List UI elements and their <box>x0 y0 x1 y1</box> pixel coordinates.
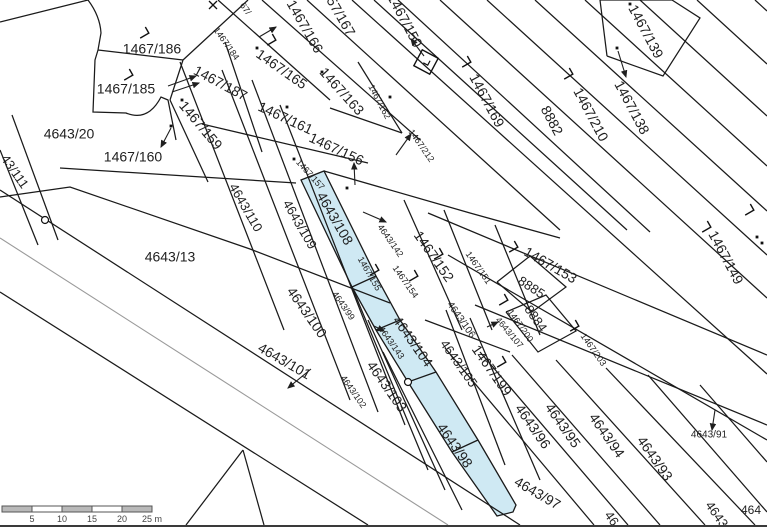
leader-arrow <box>161 128 171 147</box>
parcel-boundary <box>186 450 243 525</box>
survey-point-circle <box>405 379 412 386</box>
parcel-label: 4643/99 <box>330 289 357 321</box>
parcel-label: 4643/94 <box>586 410 628 461</box>
parcel-boundary <box>448 255 767 440</box>
parcel-label: 1467/162 <box>366 83 392 121</box>
parcel-label: 4643/102 <box>339 373 369 409</box>
corner-mark <box>699 221 711 232</box>
scale-bar-segment <box>92 506 122 512</box>
parcel-label: 1467/151 <box>464 249 494 285</box>
parcel-boundary <box>0 0 88 22</box>
leader-arrow <box>712 410 715 430</box>
parcel-boundary <box>755 0 767 11</box>
parcel-label: 4643/91 <box>691 430 728 441</box>
corner-mark <box>742 204 754 215</box>
survey-point-dot <box>256 47 259 50</box>
leader-arrow <box>363 212 386 222</box>
survey-point-dot <box>293 158 296 161</box>
corner-mark <box>121 69 133 80</box>
parcel-label: 4643/142 <box>376 222 406 258</box>
parcel-label: 4643/93 <box>634 433 676 484</box>
leader-arrow <box>396 134 411 155</box>
parcel-label: 1467/159 <box>176 98 226 153</box>
corner-mark <box>496 294 508 305</box>
parcel-label: 1467/156 <box>307 129 367 168</box>
leader-arrow <box>172 83 199 92</box>
parcel-label: 67/ <box>238 1 254 17</box>
parcel-boundary <box>640 0 767 116</box>
parcel-label: 1467/212 <box>407 127 437 163</box>
scale-bar-tick-label: 20 <box>117 514 127 524</box>
parcel-boundary <box>352 0 767 374</box>
scale-bar-tick-label: 10 <box>57 514 67 524</box>
x-mark <box>209 1 217 9</box>
survey-point-dot <box>170 125 173 128</box>
corner-mark <box>561 68 573 79</box>
scale-bar-tick-label: 15 <box>87 514 97 524</box>
parcel-label: 1467/161 <box>256 98 316 137</box>
boundary-stone-symbol <box>414 50 438 74</box>
parcel-label: 1467/199 <box>469 342 516 399</box>
scale-bar-tick-label: 25 m <box>142 514 162 524</box>
survey-point-dot <box>756 236 759 239</box>
boundary-stone-inner-mark <box>423 58 430 65</box>
parcel-boundary <box>700 385 767 462</box>
leader-arrow <box>618 51 626 77</box>
parcel-boundary-curve <box>88 0 176 140</box>
survey-point-circle <box>42 217 49 224</box>
survey-point-dot <box>389 96 392 99</box>
corner-mark <box>264 34 276 45</box>
parcel-label: 1467/154 <box>391 263 421 299</box>
scale-bar: 510152025 m <box>2 506 162 524</box>
scale-bar-segment <box>2 506 32 512</box>
parcel-label: 1467/184 <box>212 25 242 61</box>
parcel-label: 1467/210 <box>570 85 612 144</box>
parcel-boundary <box>585 0 767 166</box>
survey-point-dot <box>616 47 619 50</box>
parcel-label: 464 <box>741 503 761 517</box>
scale-bar-segment <box>62 506 92 512</box>
parcel-label: 4643 <box>702 498 731 525</box>
scale-bar-tick-label: 5 <box>29 514 34 524</box>
scale-bar-segment <box>122 506 152 512</box>
parcel-label: 1467/160 <box>104 149 163 165</box>
survey-point-dot <box>761 242 764 245</box>
parcel-label: 4643/20 <box>44 126 95 142</box>
leader-arrow <box>354 163 355 185</box>
parcel-label: 1467/138 <box>611 78 653 137</box>
survey-point-dot <box>346 187 349 190</box>
parcel-label: 1467/165 <box>253 46 310 93</box>
parcel-label: 1467/139 <box>625 2 667 61</box>
parcel-label: 1467/166 <box>284 0 327 56</box>
corner-mark <box>137 27 149 38</box>
survey-point-dot <box>286 106 289 109</box>
parcel-boundary <box>606 368 755 525</box>
parcel-label: 4643/13 <box>145 249 196 265</box>
parcel-label: 1467/163 <box>316 64 367 118</box>
survey-point-dot <box>629 3 632 6</box>
parcel-boundary <box>697 0 767 64</box>
parcel-label: 1467/186 <box>123 41 182 57</box>
leader-arrow <box>168 76 196 86</box>
scale-bar-segment <box>32 506 62 512</box>
parcel-label: 4643/100 <box>284 284 331 341</box>
parcel-label: 1467/149 <box>705 228 747 287</box>
parcel-label: 1467/187 <box>191 62 250 104</box>
cadastral-map[interactable]: 1467/1861467/1851467/1871467/1841467/160… <box>0 0 767 525</box>
parcel-boundary <box>324 171 560 238</box>
cadastral-map-view[interactable]: 1467/1861467/1851467/1871467/1841467/160… <box>0 0 767 527</box>
parcel-label: 46 <box>602 508 623 525</box>
parcel-boundary <box>243 450 264 525</box>
parcel-label: 4643/110 <box>226 181 266 235</box>
parcel-boundary <box>648 375 767 512</box>
parcel-label: 1467/150 <box>384 0 426 50</box>
parcel-boundary <box>0 190 520 525</box>
parcel-label: 1467/185 <box>97 81 156 97</box>
